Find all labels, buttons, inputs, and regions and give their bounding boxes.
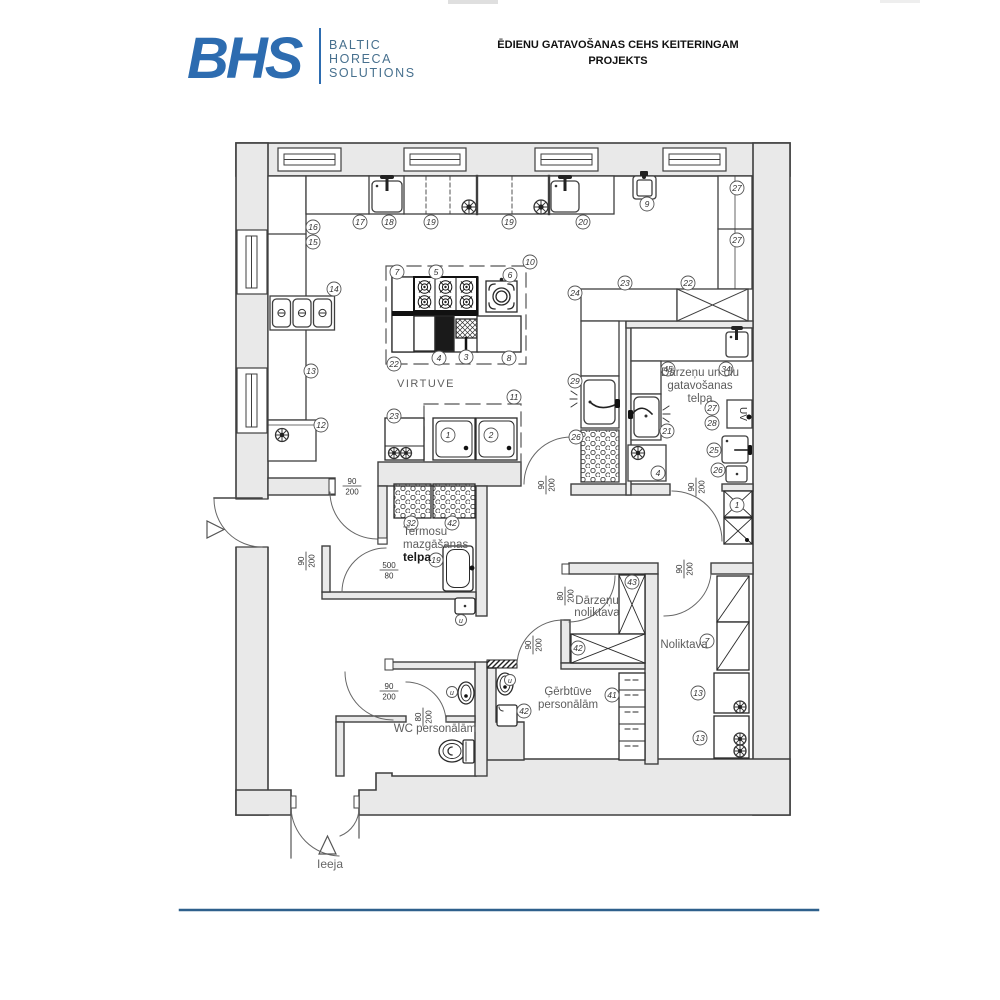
svg-text:22: 22 bbox=[388, 359, 399, 369]
svg-text:19: 19 bbox=[431, 555, 441, 565]
svg-text:200: 200 bbox=[567, 589, 576, 603]
svg-text:UV: UV bbox=[737, 407, 748, 421]
svg-text:2: 2 bbox=[488, 430, 494, 440]
svg-text:23: 23 bbox=[388, 411, 399, 421]
svg-text:90: 90 bbox=[524, 640, 533, 649]
svg-text:9: 9 bbox=[645, 199, 650, 209]
svg-text:90: 90 bbox=[348, 477, 357, 486]
svg-text:90: 90 bbox=[297, 556, 306, 565]
svg-text:200: 200 bbox=[698, 480, 707, 494]
svg-text:90: 90 bbox=[537, 480, 546, 489]
svg-text:personālām: personālām bbox=[538, 699, 598, 711]
svg-text:1: 1 bbox=[446, 430, 451, 440]
svg-text:12: 12 bbox=[316, 420, 326, 430]
svg-text:1: 1 bbox=[735, 500, 740, 510]
svg-text:200: 200 bbox=[425, 710, 434, 724]
svg-text:500: 500 bbox=[382, 561, 396, 570]
svg-text:80: 80 bbox=[556, 591, 565, 600]
svg-text:200: 200 bbox=[535, 638, 544, 652]
svg-text:BHS: BHS bbox=[187, 26, 304, 91]
svg-text:90: 90 bbox=[675, 564, 684, 573]
svg-text:90: 90 bbox=[385, 682, 394, 691]
svg-text:27: 27 bbox=[731, 183, 742, 193]
svg-text:HORECA: HORECA bbox=[329, 52, 392, 66]
svg-text:7: 7 bbox=[395, 267, 400, 277]
svg-text:telpa: telpa bbox=[688, 393, 714, 405]
svg-text:23: 23 bbox=[619, 278, 630, 288]
svg-text:18: 18 bbox=[384, 217, 394, 227]
svg-text:4: 4 bbox=[437, 353, 442, 363]
svg-text:5: 5 bbox=[434, 267, 439, 277]
svg-text:19: 19 bbox=[504, 217, 514, 227]
svg-text:u: u bbox=[508, 678, 512, 685]
svg-text:200: 200 bbox=[382, 693, 396, 702]
svg-text:200: 200 bbox=[548, 478, 557, 492]
svg-text:6: 6 bbox=[508, 270, 513, 280]
svg-text:29: 29 bbox=[569, 376, 580, 386]
svg-text:200: 200 bbox=[308, 554, 317, 568]
svg-text:200: 200 bbox=[686, 562, 695, 576]
svg-text:PROJEKTS: PROJEKTS bbox=[588, 55, 647, 67]
svg-text:BALTIC: BALTIC bbox=[329, 38, 381, 52]
svg-text:8: 8 bbox=[507, 353, 512, 363]
svg-text:u: u bbox=[450, 690, 454, 697]
svg-text:19: 19 bbox=[426, 217, 436, 227]
svg-text:telpa: telpa bbox=[403, 550, 431, 564]
svg-text:24: 24 bbox=[569, 288, 580, 298]
svg-text:20: 20 bbox=[577, 217, 588, 227]
svg-text:15: 15 bbox=[308, 237, 318, 247]
svg-text:14: 14 bbox=[329, 284, 339, 294]
svg-text:42: 42 bbox=[573, 643, 583, 653]
svg-text:43: 43 bbox=[627, 577, 637, 587]
svg-text:80: 80 bbox=[385, 572, 394, 581]
svg-text:noliktava: noliktava bbox=[574, 607, 620, 619]
svg-text:Ieeja: Ieeja bbox=[317, 857, 343, 871]
svg-text:13: 13 bbox=[693, 688, 703, 698]
svg-text:28: 28 bbox=[706, 418, 717, 428]
svg-text:13: 13 bbox=[695, 733, 705, 743]
svg-text:17: 17 bbox=[355, 217, 365, 227]
svg-text:Dārzeņu: Dārzeņu bbox=[575, 595, 618, 607]
svg-text:90: 90 bbox=[687, 482, 696, 491]
svg-text:42: 42 bbox=[519, 706, 529, 716]
svg-text:Ģērbtūve: Ģērbtūve bbox=[544, 686, 591, 698]
svg-text:4: 4 bbox=[656, 468, 661, 478]
svg-text:VIRTUVE: VIRTUVE bbox=[397, 378, 455, 390]
svg-text:200: 200 bbox=[345, 488, 359, 497]
svg-text:ĒDIENU GATAVOŠANAS CEHS KEITER: ĒDIENU GATAVOŠANAS CEHS KEITERINGAM bbox=[497, 38, 738, 51]
svg-text:10: 10 bbox=[525, 257, 535, 267]
svg-text:11: 11 bbox=[510, 392, 519, 402]
svg-text:WC personālām: WC personālām bbox=[394, 723, 476, 735]
svg-text:u: u bbox=[459, 618, 463, 625]
svg-text:3: 3 bbox=[464, 352, 469, 362]
svg-text:42: 42 bbox=[447, 518, 457, 528]
svg-text:Dārzeņu un olu: Dārzeņu un olu bbox=[661, 367, 739, 379]
svg-text:SOLUTIONS: SOLUTIONS bbox=[329, 66, 416, 80]
svg-text:22: 22 bbox=[682, 278, 693, 288]
svg-text:Noliktava: Noliktava bbox=[660, 639, 708, 651]
svg-text:80: 80 bbox=[414, 712, 423, 721]
svg-text:Termosu: Termosu bbox=[403, 526, 447, 538]
svg-text:13: 13 bbox=[306, 366, 316, 376]
svg-text:27: 27 bbox=[731, 235, 742, 245]
svg-text:26: 26 bbox=[712, 465, 723, 475]
svg-text:41: 41 bbox=[607, 690, 617, 700]
svg-text:25: 25 bbox=[708, 445, 719, 455]
svg-text:16: 16 bbox=[308, 222, 318, 232]
svg-text:gatavošanas: gatavošanas bbox=[667, 380, 732, 392]
svg-text:26: 26 bbox=[570, 432, 581, 442]
svg-text:21: 21 bbox=[661, 426, 672, 436]
